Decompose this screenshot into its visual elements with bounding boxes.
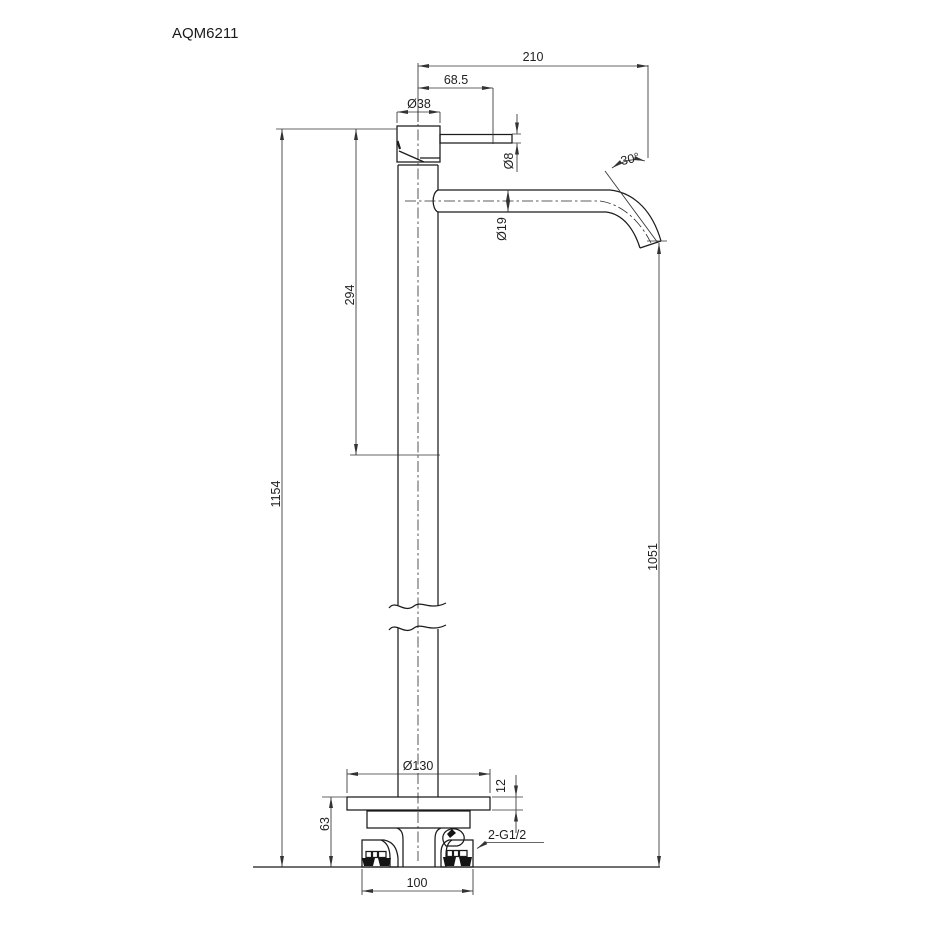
dimension-labels: AQM6211 210 68.5 Ø38 Ø8 30° Ø19 294 1154… bbox=[172, 25, 660, 890]
dim-68-5-label: 68.5 bbox=[444, 73, 468, 87]
extension-lines bbox=[276, 63, 667, 895]
thread-leader-line bbox=[477, 842, 487, 849]
left-foot-nut bbox=[366, 852, 386, 858]
ext-handle-d8 bbox=[512, 134, 521, 143]
right-foot-slots bbox=[453, 851, 459, 857]
drawing-sheet: AQM6211 210 68.5 Ø38 Ø8 30° Ø19 294 1154… bbox=[0, 0, 930, 930]
dim-1051-label: 1051 bbox=[646, 543, 660, 571]
left-foot-pad-a bbox=[362, 858, 375, 866]
left-foot-pad-b bbox=[378, 858, 391, 866]
faucet-technical-drawing: AQM6211 210 68.5 Ø38 Ø8 30° Ø19 294 1154… bbox=[0, 0, 930, 930]
right-foot-pad-b bbox=[459, 857, 472, 866]
left-foot-slots bbox=[372, 852, 378, 858]
faucet-head-outline bbox=[397, 126, 440, 162]
dim-294-label: 294 bbox=[343, 285, 357, 306]
head-edge-tick bbox=[398, 141, 401, 149]
dim-210-label: 210 bbox=[523, 50, 544, 64]
ext-head-d38 bbox=[397, 112, 440, 123]
dim-30deg-label: 30° bbox=[619, 150, 641, 168]
dim-1154-label: 1154 bbox=[269, 481, 283, 508]
dim-d8-label: Ø8 bbox=[502, 153, 516, 170]
dim-d19-label: Ø19 bbox=[495, 217, 509, 241]
centerlines bbox=[405, 110, 651, 861]
dim-12-label: 12 bbox=[494, 779, 508, 793]
ext-flange-12 bbox=[492, 797, 523, 810]
head-diagonal-line bbox=[399, 151, 424, 162]
faucet-outline bbox=[253, 126, 661, 867]
angle-reference-line bbox=[605, 171, 658, 243]
right-foot-nut bbox=[447, 851, 467, 857]
center-pipe-right bbox=[435, 828, 441, 867]
dim-63-label: 63 bbox=[318, 817, 332, 831]
dim-d130-label: Ø130 bbox=[403, 759, 434, 773]
base-collar-outline bbox=[367, 811, 470, 828]
right-foot-pad-a bbox=[443, 857, 456, 866]
dim-100-label: 100 bbox=[407, 876, 428, 890]
thread-label: 2-G1/2 bbox=[488, 828, 526, 842]
dim-d38-label: Ø38 bbox=[407, 97, 431, 111]
spout-bend-inner bbox=[606, 212, 640, 248]
drawing-title: AQM6211 bbox=[172, 25, 238, 42]
handle-lever-outline bbox=[440, 135, 512, 144]
base-plate-outline bbox=[347, 797, 490, 810]
